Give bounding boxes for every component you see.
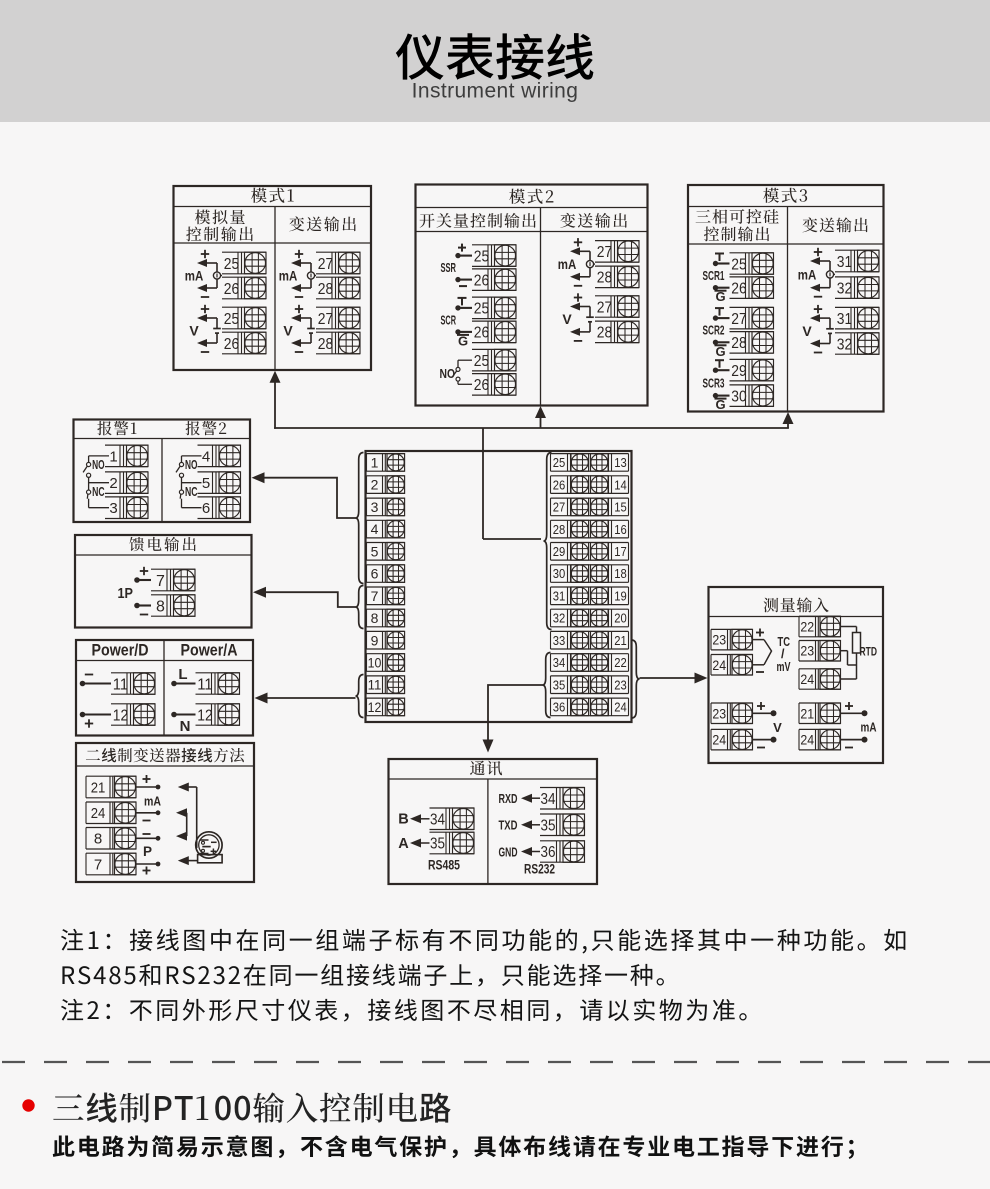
svg-text:19: 19 bbox=[614, 589, 627, 604]
svg-text:1: 1 bbox=[371, 454, 379, 470]
svg-text:V: V bbox=[562, 311, 572, 327]
svg-text:5: 5 bbox=[371, 543, 379, 559]
svg-text:V: V bbox=[283, 323, 293, 339]
svg-text:25: 25 bbox=[553, 455, 566, 470]
svg-text:12: 12 bbox=[368, 699, 382, 715]
svg-text:4: 4 bbox=[202, 448, 210, 465]
svg-text:32: 32 bbox=[837, 281, 853, 298]
svg-text:25: 25 bbox=[474, 301, 490, 318]
svg-text:NO: NO bbox=[92, 458, 105, 472]
svg-text:14: 14 bbox=[614, 477, 627, 492]
svg-text:11: 11 bbox=[368, 677, 382, 693]
svg-text:TXD: TXD bbox=[499, 818, 518, 833]
svg-text:35: 35 bbox=[553, 677, 566, 692]
svg-text:RXD: RXD bbox=[499, 791, 518, 806]
svg-text:7: 7 bbox=[156, 573, 165, 590]
svg-text:26: 26 bbox=[474, 272, 490, 289]
svg-text:G: G bbox=[715, 397, 725, 412]
svg-text:L: L bbox=[178, 666, 187, 683]
svg-text:26: 26 bbox=[224, 281, 240, 298]
svg-text:SSR: SSR bbox=[441, 260, 457, 275]
svg-text:7: 7 bbox=[371, 588, 379, 604]
svg-text:36: 36 bbox=[553, 700, 566, 715]
svg-text:31: 31 bbox=[837, 254, 853, 271]
svg-text:SCR3: SCR3 bbox=[703, 375, 725, 390]
svg-text:9: 9 bbox=[371, 632, 379, 648]
svg-text:4: 4 bbox=[371, 521, 379, 537]
svg-text:G: G bbox=[458, 333, 468, 348]
svg-text:28: 28 bbox=[553, 522, 566, 537]
svg-text:mA: mA bbox=[144, 794, 161, 809]
svg-text:A: A bbox=[398, 836, 409, 852]
svg-text:28: 28 bbox=[597, 325, 613, 342]
svg-text:1: 1 bbox=[109, 448, 117, 465]
svg-text:2: 2 bbox=[109, 475, 117, 492]
svg-text:8: 8 bbox=[371, 610, 379, 626]
svg-text:26: 26 bbox=[553, 477, 566, 492]
svg-text:33: 33 bbox=[553, 633, 566, 648]
svg-text:31: 31 bbox=[553, 589, 566, 604]
svg-text:6: 6 bbox=[371, 566, 379, 582]
svg-text:RS485: RS485 bbox=[428, 858, 460, 873]
svg-text:28: 28 bbox=[318, 336, 334, 353]
svg-text:35: 35 bbox=[430, 836, 445, 853]
svg-text:27: 27 bbox=[318, 256, 334, 273]
svg-text:23: 23 bbox=[614, 677, 627, 692]
svg-text:35: 35 bbox=[541, 817, 556, 834]
svg-text:Power/A: Power/A bbox=[181, 642, 238, 660]
svg-text:5: 5 bbox=[202, 475, 210, 492]
svg-text:24: 24 bbox=[712, 732, 726, 748]
svg-text:31: 31 bbox=[837, 311, 853, 328]
svg-text:23: 23 bbox=[800, 643, 814, 659]
svg-text:34: 34 bbox=[430, 811, 445, 828]
svg-text:24: 24 bbox=[800, 732, 814, 748]
svg-text:2: 2 bbox=[371, 477, 379, 493]
svg-text:G: G bbox=[715, 344, 725, 359]
svg-text:SCR2: SCR2 bbox=[703, 323, 725, 338]
svg-text:V: V bbox=[773, 720, 782, 735]
svg-text:G: G bbox=[715, 289, 725, 304]
svg-text:23: 23 bbox=[712, 632, 726, 648]
svg-text:29: 29 bbox=[553, 544, 566, 559]
svg-text:25: 25 bbox=[474, 353, 490, 370]
svg-text:24: 24 bbox=[91, 805, 106, 822]
svg-text:27: 27 bbox=[597, 299, 613, 316]
svg-text:11: 11 bbox=[113, 676, 129, 693]
svg-text:23: 23 bbox=[712, 705, 726, 721]
svg-text:32: 32 bbox=[553, 611, 566, 626]
svg-text:25: 25 bbox=[224, 311, 240, 328]
svg-text:mA: mA bbox=[798, 266, 817, 282]
svg-text:27: 27 bbox=[553, 500, 566, 515]
svg-text:17: 17 bbox=[614, 544, 627, 559]
svg-text:24: 24 bbox=[712, 657, 726, 673]
svg-text:mA: mA bbox=[558, 256, 577, 272]
svg-text:27: 27 bbox=[731, 311, 747, 328]
svg-text:27: 27 bbox=[318, 311, 334, 328]
svg-text:28: 28 bbox=[318, 281, 334, 298]
svg-text:1P: 1P bbox=[118, 586, 134, 602]
svg-text:34: 34 bbox=[553, 655, 566, 670]
svg-text:/: / bbox=[781, 647, 785, 661]
svg-text:26: 26 bbox=[731, 281, 747, 298]
svg-text:11: 11 bbox=[197, 676, 213, 693]
svg-text:30: 30 bbox=[553, 566, 566, 581]
svg-text:25: 25 bbox=[474, 248, 490, 265]
svg-text:NC: NC bbox=[185, 485, 198, 499]
svg-text:6: 6 bbox=[202, 500, 210, 517]
svg-text:V: V bbox=[189, 323, 199, 339]
svg-text:27: 27 bbox=[597, 244, 613, 261]
svg-text:mA: mA bbox=[185, 268, 204, 284]
svg-text:GND: GND bbox=[499, 845, 518, 860]
svg-text:NC: NC bbox=[92, 485, 105, 499]
svg-text:Instrument wiring: Instrument wiring bbox=[412, 80, 579, 103]
svg-text:18: 18 bbox=[614, 566, 627, 581]
svg-text:8: 8 bbox=[94, 831, 102, 848]
svg-text:34: 34 bbox=[541, 791, 556, 808]
svg-text:SCR1: SCR1 bbox=[703, 268, 725, 283]
svg-text:22: 22 bbox=[614, 655, 627, 670]
svg-text:V: V bbox=[802, 323, 812, 339]
svg-text:mV: mV bbox=[777, 660, 791, 674]
svg-text:B: B bbox=[398, 812, 408, 828]
svg-text:NO: NO bbox=[185, 458, 198, 472]
svg-text:mA: mA bbox=[279, 268, 298, 284]
svg-text:8: 8 bbox=[156, 598, 165, 615]
svg-text:P: P bbox=[143, 844, 152, 859]
svg-text:36: 36 bbox=[541, 844, 556, 861]
svg-text:21: 21 bbox=[614, 633, 627, 648]
svg-text:25: 25 bbox=[224, 256, 240, 273]
svg-text:SCR: SCR bbox=[441, 312, 457, 327]
svg-text:13: 13 bbox=[614, 455, 627, 470]
svg-text:Power/D: Power/D bbox=[92, 642, 149, 660]
svg-text:mA: mA bbox=[861, 721, 877, 735]
svg-text:28: 28 bbox=[731, 335, 747, 352]
svg-text:7: 7 bbox=[94, 856, 102, 873]
svg-text:N: N bbox=[180, 718, 191, 735]
svg-text:20: 20 bbox=[614, 611, 627, 626]
svg-text:12: 12 bbox=[113, 707, 129, 724]
svg-text:3: 3 bbox=[109, 500, 117, 517]
svg-text:29: 29 bbox=[731, 363, 747, 380]
svg-text:10: 10 bbox=[368, 655, 382, 671]
svg-text:21: 21 bbox=[800, 705, 814, 721]
svg-text:RS232: RS232 bbox=[524, 862, 555, 877]
svg-text:26: 26 bbox=[474, 377, 490, 394]
svg-text:26: 26 bbox=[224, 336, 240, 353]
svg-text:24: 24 bbox=[800, 671, 814, 687]
svg-text:25: 25 bbox=[731, 256, 747, 273]
svg-text:15: 15 bbox=[614, 500, 627, 515]
svg-text:3: 3 bbox=[371, 499, 379, 515]
svg-text:21: 21 bbox=[91, 779, 106, 796]
svg-text:NO: NO bbox=[440, 367, 456, 381]
svg-text:32: 32 bbox=[837, 336, 853, 353]
svg-text:28: 28 bbox=[597, 270, 613, 287]
svg-text:30: 30 bbox=[731, 388, 747, 405]
svg-text:RTD: RTD bbox=[860, 647, 878, 659]
svg-text:26: 26 bbox=[474, 325, 490, 342]
svg-text:22: 22 bbox=[800, 619, 814, 635]
svg-text:16: 16 bbox=[614, 522, 627, 537]
svg-text:24: 24 bbox=[614, 700, 627, 715]
svg-text:12: 12 bbox=[197, 707, 213, 724]
